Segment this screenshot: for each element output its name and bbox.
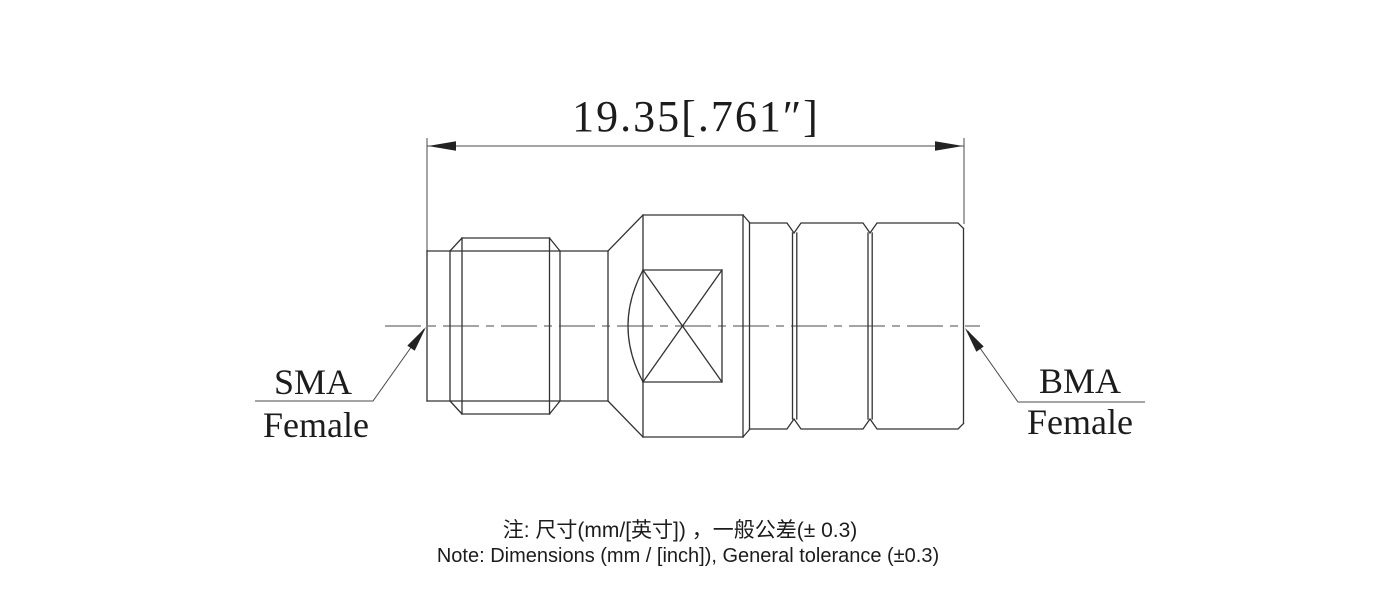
rings-top-edge bbox=[750, 223, 964, 233]
dimension-lines bbox=[427, 138, 964, 251]
bma-sublabel: Female bbox=[1027, 402, 1133, 442]
sma-leader-arrow-icon bbox=[407, 327, 426, 351]
technical-drawing-page: 19.35[.761″] SMA Female BMA Female 注: 尺寸… bbox=[0, 0, 1400, 600]
leader-arrowheads bbox=[407, 327, 983, 352]
dimension-arrow-right-icon bbox=[935, 141, 963, 150]
bma-leader-arrow-icon bbox=[965, 328, 984, 352]
leader-lines bbox=[255, 329, 1145, 402]
cone-bottom-edge bbox=[608, 401, 643, 437]
sma-sublabel: Female bbox=[263, 405, 369, 445]
sma-label: SMA bbox=[274, 362, 352, 402]
adapter-drawing-canvas: 19.35[.761″] SMA Female BMA Female 注: 尺寸… bbox=[0, 0, 1400, 600]
bma-label: BMA bbox=[1039, 361, 1121, 401]
dimension-arrow-left-icon bbox=[428, 141, 456, 150]
note-chinese: 注: 尺寸(mm/[英寸]) ，一般公差(± 0.3) bbox=[503, 519, 858, 542]
rings-bottom-edge bbox=[750, 419, 964, 429]
cone-top-edge bbox=[608, 215, 643, 251]
dimension-value: 19.35[.761″] bbox=[572, 92, 820, 141]
note-english: Note: Dimensions (mm / [inch]), General … bbox=[437, 545, 939, 567]
